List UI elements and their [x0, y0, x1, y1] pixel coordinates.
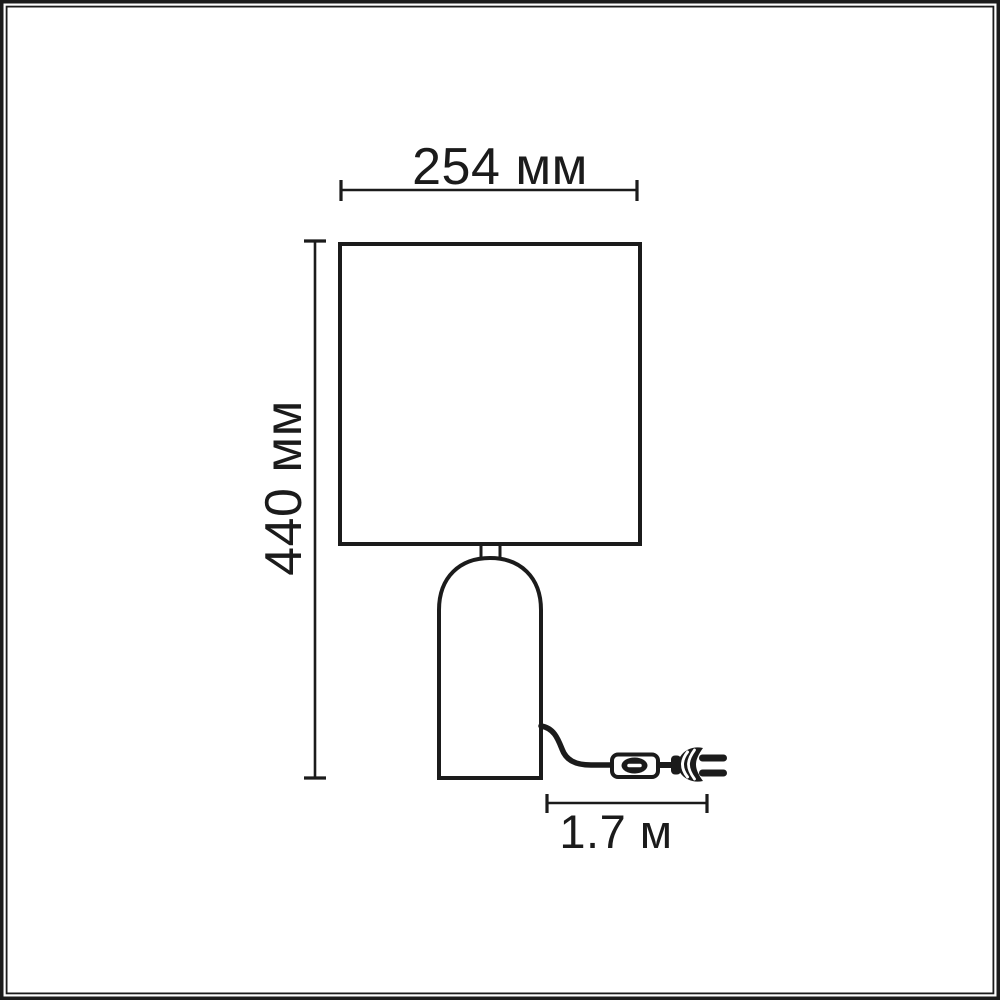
diagram-canvas: 254 мм 440 мм [0, 0, 1000, 1000]
cable-dimension: 1.7 м [547, 794, 707, 858]
power-plug [671, 747, 727, 781]
lamp-drawing [340, 244, 727, 782]
height-dimension: 440 мм [255, 241, 326, 778]
power-cord [541, 726, 613, 765]
lamp-dimension-diagram: 254 мм 440 мм [0, 0, 1000, 1000]
width-dimension: 254 мм [341, 138, 637, 201]
plug-prong-bottom [699, 770, 727, 777]
plug-prong-top [699, 755, 727, 762]
lamp-base [439, 558, 541, 778]
inline-switch [612, 755, 658, 778]
lampshade [340, 244, 640, 544]
height-dimension-label: 440 мм [255, 400, 313, 576]
width-dimension-label: 254 мм [412, 138, 588, 196]
cable-dimension-label: 1.7 м [559, 805, 672, 858]
